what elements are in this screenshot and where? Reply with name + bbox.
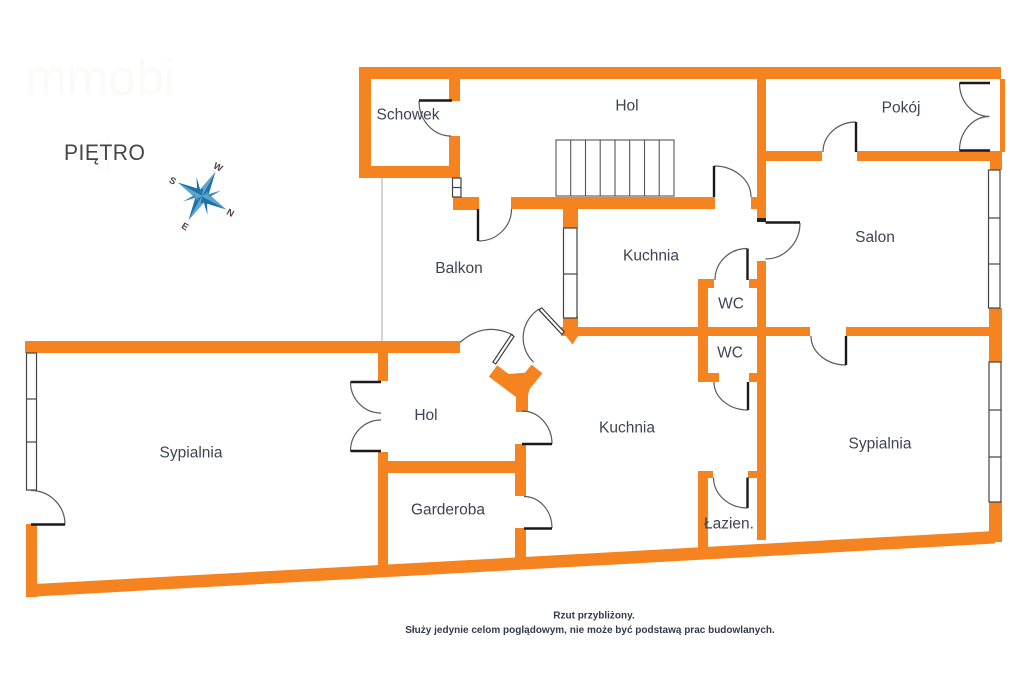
svg-text:Salon: Salon [855,229,895,246]
svg-text:Balkon: Balkon [435,260,482,277]
svg-text:Łazien.: Łazien. [704,516,754,533]
svg-text:Schowek: Schowek [377,107,440,124]
svg-text:Służy jedynie celom poglądowym: Służy jedynie celom poglądowym, nie może… [405,625,775,636]
svg-text:Hol: Hol [414,407,437,424]
svg-text:Pokój: Pokój [882,100,921,117]
svg-text:Kuchnia: Kuchnia [623,248,679,265]
svg-text:Sypialnia: Sypialnia [849,436,912,453]
svg-text:Hol: Hol [615,98,638,115]
svg-text:WC: WC [718,296,744,313]
svg-text:Kuchnia: Kuchnia [599,420,655,437]
svg-text:mmobi: mmobi [25,50,175,106]
svg-text:WC: WC [717,345,743,362]
svg-text:Rzut przybliżony.: Rzut przybliżony. [553,611,635,622]
svg-text:PIĘTRO: PIĘTRO [64,140,145,166]
svg-text:Sypialnia: Sypialnia [160,445,223,462]
svg-text:Garderoba: Garderoba [411,502,485,519]
